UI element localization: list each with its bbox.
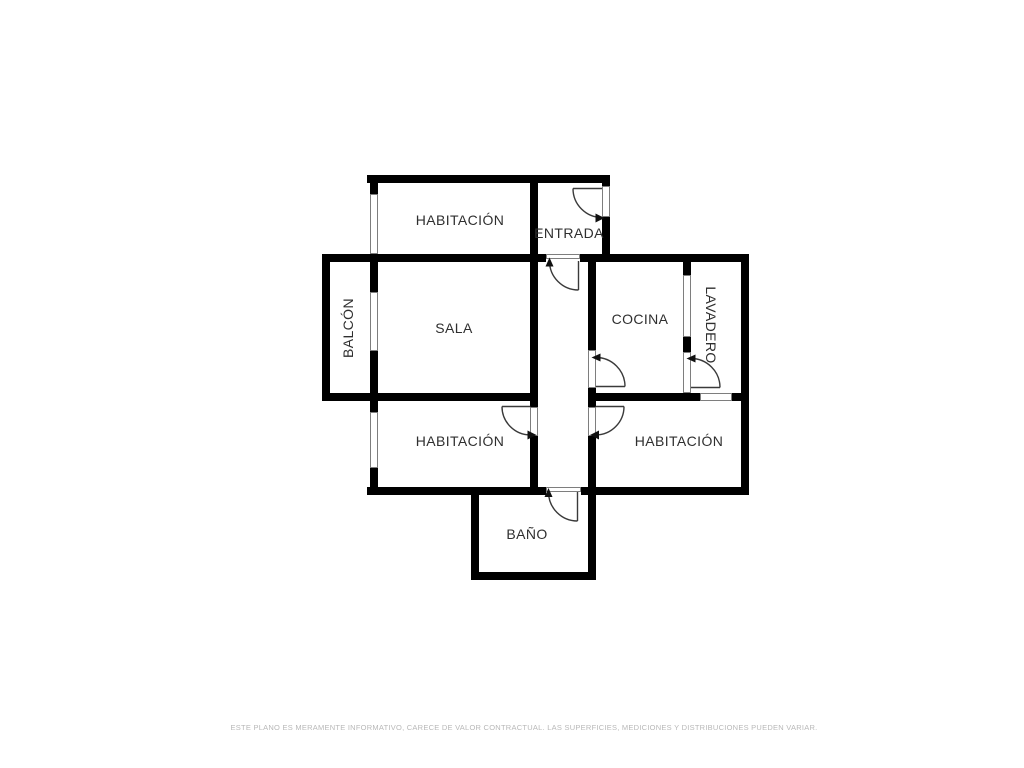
room-label-entrada: ENTRADA bbox=[534, 226, 604, 240]
room-label-balcon: BALCÓN bbox=[341, 298, 355, 358]
wall-bano-left bbox=[471, 487, 479, 580]
wall-top bbox=[367, 175, 610, 183]
wall-entrada-right-upper bbox=[602, 175, 610, 186]
door-leaf-habitacion-der bbox=[588, 407, 596, 436]
door-arc-pasillo bbox=[550, 261, 579, 290]
wall-right bbox=[741, 254, 749, 495]
wall-lavadero-left-mid bbox=[683, 337, 691, 352]
wall-lavadero-left-upper bbox=[683, 262, 691, 275]
wall-corridor-left-upper bbox=[530, 175, 538, 407]
window-habitacion-top bbox=[370, 194, 378, 254]
wall-lower-right bbox=[581, 487, 749, 495]
window-lavadero bbox=[683, 275, 691, 337]
door-leaf-cocina bbox=[588, 350, 596, 388]
door-swings-layer bbox=[0, 0, 1024, 768]
window-habitacion-izq bbox=[370, 412, 378, 468]
door-threshold-bano bbox=[546, 487, 581, 492]
wall-left-mid2 bbox=[370, 351, 378, 412]
wall-left-mid1 bbox=[370, 254, 378, 292]
door-leaf-lavadero bbox=[683, 352, 691, 393]
door-arc-cocina bbox=[596, 358, 625, 387]
disclaimer-text: ESTE PLANO ES MERAMENTE INFORMATIVO, CAR… bbox=[231, 723, 818, 732]
door-arc-bano bbox=[549, 492, 578, 521]
room-label-lavadero: LAVADERO bbox=[704, 286, 718, 363]
room-label-habitacion-der: HABITACIÓN bbox=[635, 434, 724, 448]
wall-cocina-bottom-left bbox=[588, 393, 700, 401]
room-label-bano: BAÑO bbox=[506, 527, 547, 541]
window-habitacion-der bbox=[700, 393, 732, 401]
wall-corridor-right-mid bbox=[588, 388, 596, 407]
wall-bano-bottom bbox=[471, 572, 596, 580]
wall-balcon-left bbox=[322, 254, 330, 401]
wall-corridor-left-lower bbox=[530, 436, 538, 495]
wall-left-upper bbox=[370, 175, 378, 194]
wall-corridor-right-upper bbox=[588, 262, 596, 350]
wall-lower-left bbox=[367, 487, 546, 495]
door-leaf-entrada bbox=[602, 186, 610, 217]
wall-left-lower bbox=[370, 468, 378, 495]
window-sala bbox=[370, 292, 378, 351]
door-arc-entrada bbox=[573, 189, 602, 218]
door-threshold-pasillo bbox=[546, 254, 580, 259]
wall-sala-bottom bbox=[322, 393, 538, 401]
wall-corridor-right-lower bbox=[588, 436, 596, 580]
door-leaf-habitacion-izq bbox=[530, 407, 538, 436]
room-label-habitacion-izq: HABITACIÓN bbox=[416, 434, 505, 448]
door-arc-habitacion-izq bbox=[502, 407, 531, 436]
room-label-habitacion-top: HABITACIÓN bbox=[416, 213, 505, 227]
door-arc-habitacion-der bbox=[596, 407, 625, 436]
wall-mid-left bbox=[322, 254, 546, 262]
floor-plan-page: HABITACIÓN ENTRADA BALCÓN SALA COCINA LA… bbox=[0, 0, 1024, 768]
room-label-sala: SALA bbox=[435, 321, 472, 335]
room-label-cocina: COCINA bbox=[612, 312, 669, 326]
